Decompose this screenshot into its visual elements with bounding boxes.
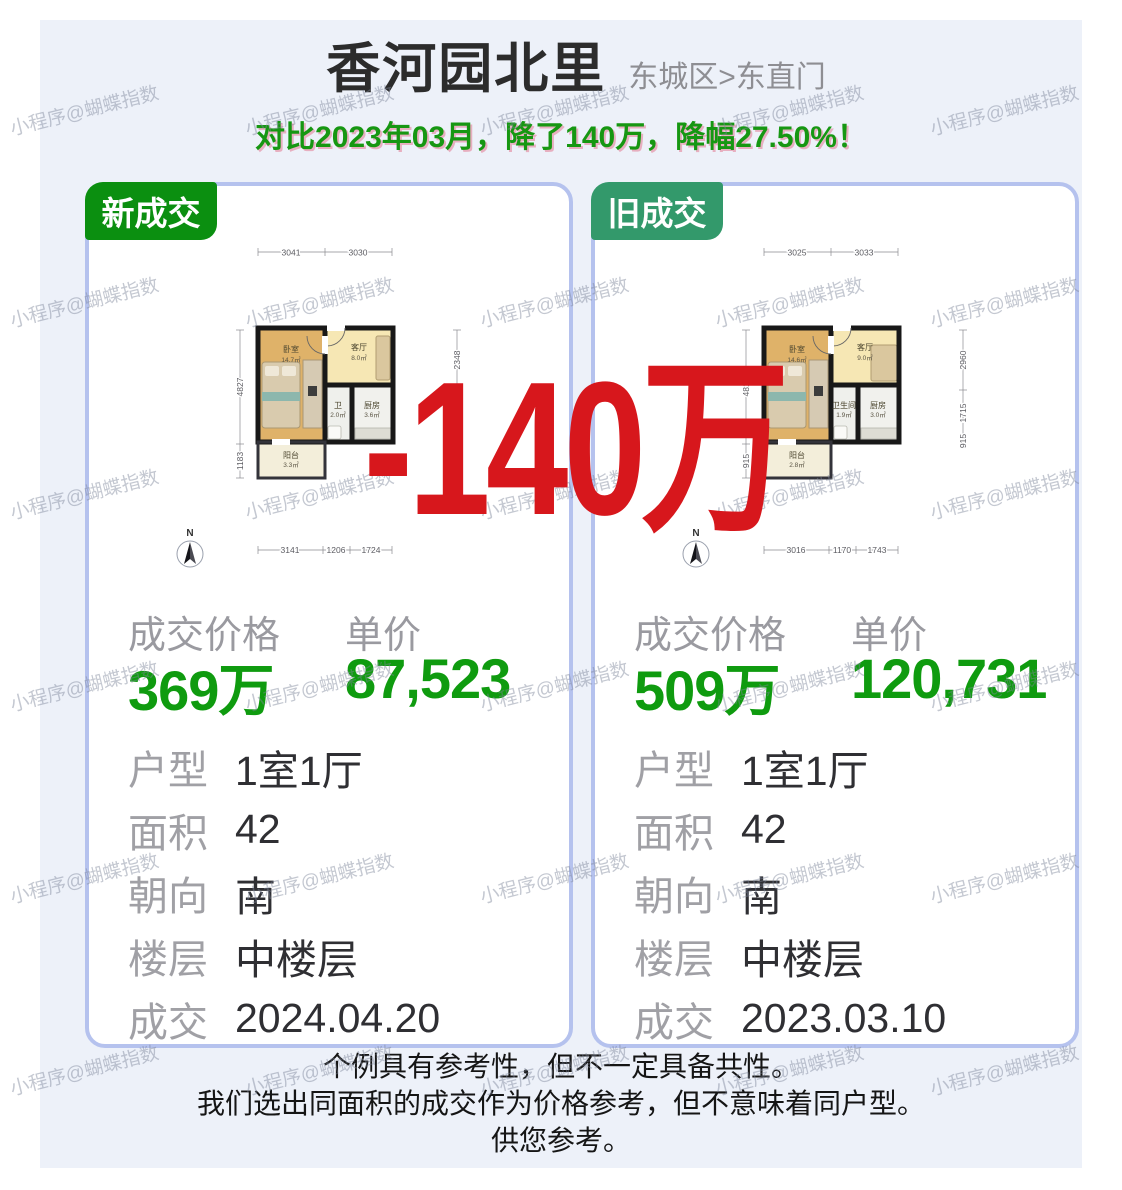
detail-label: 面积	[128, 801, 235, 859]
svg-text:3041: 3041	[282, 248, 301, 258]
price-drop-banner: 对比2023年03月，降了140万，降幅27.50%！	[0, 112, 1122, 156]
detail-value: 42	[741, 806, 787, 853]
svg-text:阳台: 阳台	[283, 450, 299, 460]
svg-text:1724: 1724	[362, 545, 381, 555]
svg-text:1183: 1183	[235, 452, 245, 471]
detail-row: 户型1室1厅	[128, 735, 553, 798]
new-deal-badge: 新成交	[85, 182, 217, 240]
svg-text:卫: 卫	[334, 401, 342, 410]
detail-value: 南	[235, 863, 276, 923]
detail-row: 楼层中楼层	[634, 924, 1059, 987]
svg-text:1170: 1170	[833, 545, 852, 555]
detail-list: 户型1室1厅 面积42 朝向南 楼层中楼层 成交2024.04.20	[128, 735, 553, 1050]
svg-text:915: 915	[958, 434, 968, 448]
page-title: 香河园北里	[326, 24, 606, 103]
svg-text:N: N	[692, 528, 699, 539]
detail-label: 朝向	[634, 864, 741, 922]
svg-text:915: 915	[741, 454, 751, 468]
detail-label: 成交	[634, 990, 741, 1048]
svg-text:3033: 3033	[855, 248, 874, 258]
svg-text:3030: 3030	[349, 248, 368, 258]
svg-text:1.9㎡: 1.9㎡	[836, 410, 852, 419]
detail-row: 面积42	[634, 798, 1059, 861]
deal-price-value: 369万	[128, 646, 345, 727]
unit-price-value: 120,731	[851, 646, 1046, 727]
detail-list: 户型1室1厅 面积42 朝向南 楼层中楼层 成交2023.03.10	[634, 735, 1059, 1050]
disclaimer-line: 供您参考。	[0, 1122, 1122, 1159]
disclaimer: 个例具有参考性，但不一定具备共性。 我们选出同面积的成交作为价格参考，但不意味着…	[0, 1048, 1122, 1159]
svg-text:3025: 3025	[788, 248, 807, 258]
floor-plan-new: 卧室 14.7㎡ 客厅 8.0㎡ 卫 2.0㎡ 厨房 3.6㎡ 阳台 3.3㎡ …	[160, 240, 500, 578]
svg-text:9.0㎡: 9.0㎡	[857, 353, 873, 362]
svg-text:3.3㎡: 3.3㎡	[283, 460, 299, 469]
old-deal-card: 旧成交	[591, 182, 1079, 1048]
svg-text:4827: 4827	[235, 377, 245, 396]
svg-text:8.0㎡: 8.0㎡	[351, 353, 367, 362]
svg-text:客厅: 客厅	[351, 342, 367, 352]
svg-text:2960: 2960	[958, 350, 968, 369]
svg-text:14.6㎡: 14.6㎡	[787, 355, 807, 364]
detail-value: 中楼层	[741, 926, 864, 986]
detail-value: 1室1厅	[741, 737, 869, 797]
svg-text:106: 106	[452, 434, 462, 448]
detail-label: 楼层	[634, 927, 741, 985]
detail-row: 户型1室1厅	[634, 735, 1059, 798]
price-values: 369万 87,523	[128, 646, 510, 727]
svg-text:3016: 3016	[787, 545, 806, 555]
svg-text:N: N	[186, 528, 193, 539]
svg-text:2348: 2348	[452, 350, 462, 369]
detail-label: 户型	[128, 738, 235, 796]
detail-value: 2023.03.10	[741, 995, 946, 1042]
detail-value: 1室1厅	[235, 737, 363, 797]
detail-row: 面积42	[128, 798, 553, 861]
svg-text:1206: 1206	[327, 545, 346, 555]
detail-label: 户型	[634, 738, 741, 796]
svg-text:阳台: 阳台	[789, 450, 805, 460]
svg-text:14.7㎡: 14.7㎡	[281, 355, 301, 364]
detail-row: 成交2023.03.10	[634, 987, 1059, 1050]
compass-icon: N	[177, 528, 203, 567]
svg-text:1743: 1743	[868, 545, 887, 555]
svg-text:3.6㎡: 3.6㎡	[364, 410, 380, 419]
detail-row: 成交2024.04.20	[128, 987, 553, 1050]
svg-text:客厅: 客厅	[857, 342, 873, 352]
svg-text:3.0㎡: 3.0㎡	[870, 410, 886, 419]
detail-label: 楼层	[128, 927, 235, 985]
svg-text:2.8㎡: 2.8㎡	[789, 460, 805, 469]
svg-text:1715: 1715	[958, 403, 968, 422]
deal-price-value: 509万	[634, 646, 851, 727]
svg-text:3141: 3141	[281, 545, 300, 555]
disclaimer-line: 我们选出同面积的成交作为价格参考，但不意味着同户型。	[0, 1085, 1122, 1122]
detail-value: 42	[235, 806, 281, 853]
svg-text:4815: 4815	[741, 377, 751, 396]
svg-text:卧室: 卧室	[283, 344, 299, 354]
svg-text:2.0㎡: 2.0㎡	[330, 410, 346, 419]
detail-label: 成交	[128, 990, 235, 1048]
old-deal-badge: 旧成交	[591, 182, 723, 240]
svg-text:卧室: 卧室	[789, 344, 805, 354]
header: 香河园北里 东城区>东直门	[0, 24, 1122, 103]
detail-value: 南	[741, 863, 782, 923]
detail-row: 朝向南	[634, 861, 1059, 924]
svg-text:1784: 1784	[452, 403, 462, 422]
unit-price-value: 87,523	[345, 646, 510, 727]
detail-row: 朝向南	[128, 861, 553, 924]
detail-value: 中楼层	[235, 926, 358, 986]
svg-text:厨房: 厨房	[364, 400, 380, 410]
district-breadcrumb: 东城区>东直门	[628, 52, 826, 96]
disclaimer-line: 个例具有参考性，但不一定具备共性。	[0, 1048, 1122, 1085]
detail-value: 2024.04.20	[235, 995, 440, 1042]
compass-icon: N	[683, 528, 709, 567]
detail-row: 楼层中楼层	[128, 924, 553, 987]
detail-label: 面积	[634, 801, 741, 859]
svg-text:卫生间: 卫生间	[832, 400, 856, 410]
price-values: 509万 120,731	[634, 646, 1046, 727]
svg-text:厨房: 厨房	[870, 400, 886, 410]
floor-plan-old: 卧室 14.6㎡ 客厅 9.0㎡ 卫生间 1.9㎡ 厨房 3.0㎡ 阳台 2.8…	[666, 240, 1006, 578]
detail-label: 朝向	[128, 864, 235, 922]
new-deal-card: 新成交	[85, 182, 573, 1048]
share-card-page: 香河园北里 东城区>东直门 对比2023年03月，降了140万，降幅27.50%…	[0, 0, 1122, 1190]
